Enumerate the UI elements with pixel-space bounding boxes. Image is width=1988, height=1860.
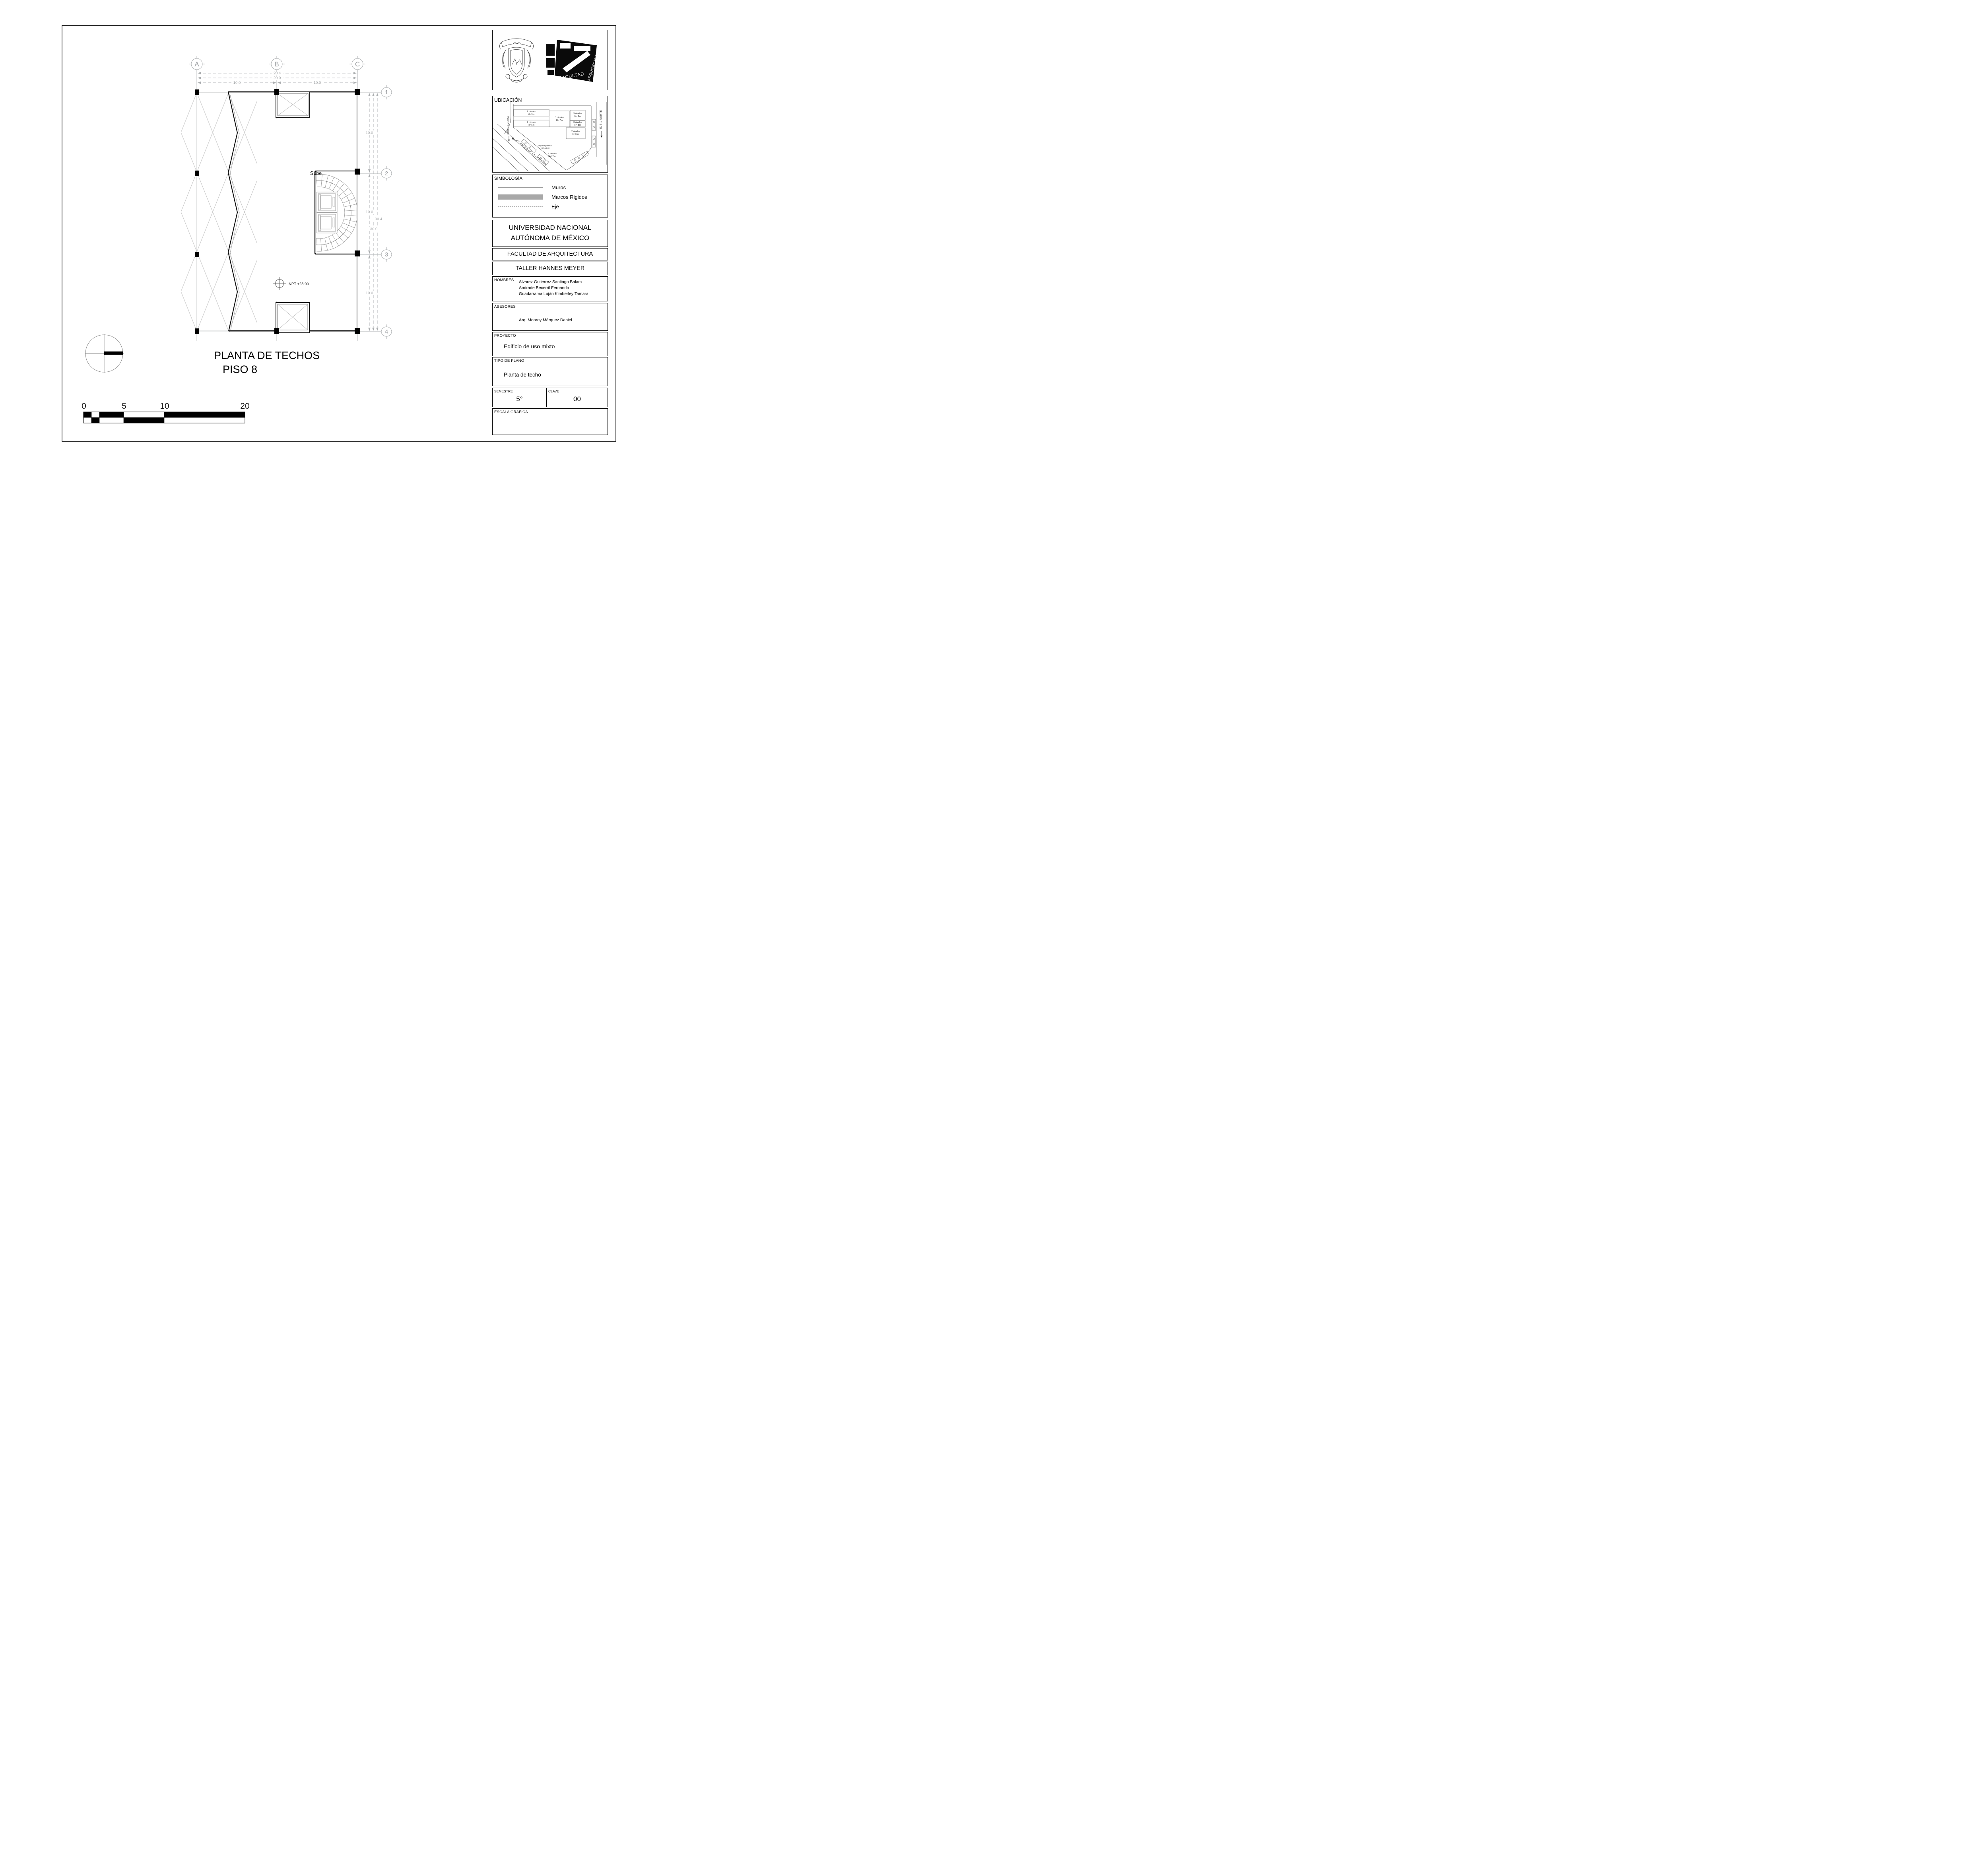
svg-text:10.0: 10.0: [366, 291, 373, 295]
svg-text:2 niveles: 2 niveles: [527, 121, 536, 124]
grid-bubbles-right: 1 2 3 4: [381, 85, 392, 339]
map-building-labels: 2 nivelesH= 5m 2 nivelesH= 5m 3 nivelesH…: [527, 111, 582, 158]
svg-text:H= 8m: H= 8m: [575, 124, 581, 126]
asesor-name: Arq. Monroy Márquez Daniel: [519, 318, 572, 322]
svg-text:PLANTA DE TECHOS: PLANTA DE TECHOS: [214, 349, 320, 361]
svg-text:2 niveles: 2 niveles: [571, 130, 580, 133]
unam-crest-icon: [499, 39, 533, 82]
semestre-value: 5°: [493, 395, 546, 403]
svg-text:MOCTEZUMA: MOCTEZUMA: [507, 116, 510, 134]
eje-dash-sample: [498, 206, 543, 207]
scale-bar: 0 5 10 20: [82, 402, 250, 423]
universidad-line1: UNIVERSIDAD NACIONAL: [493, 223, 608, 233]
svg-text:30.0: 30.0: [370, 227, 378, 231]
logos-panel: FACULTAD ARQUITECTURA: [492, 30, 608, 90]
nombres-panel: NOMBRES Alvarez Gutierrez Santiago Balam…: [492, 276, 608, 301]
svg-text:2: 2: [385, 170, 388, 177]
clave-label: CLAVE: [548, 389, 559, 393]
asesores-label: ASESORES: [494, 305, 516, 309]
dimension-labels-right: 10.0 10.0 10.0 30.0 30.4: [364, 130, 384, 295]
svg-text:B: B: [274, 60, 279, 68]
svg-text:H= 5m: H= 5m: [528, 124, 535, 126]
semestre-label: SEMESTRE: [494, 389, 513, 393]
tipo-plano-label: TIPO DE PLANO: [494, 359, 524, 363]
proyecto-value: Edificio de uso mixto: [504, 343, 555, 349]
tipo-plano-panel: TIPO DE PLANO Planta de techo: [492, 357, 608, 386]
svg-text:3 niveles: 3 niveles: [573, 113, 582, 115]
proyecto-panel: PROYECTO Edificio de uso mixto: [492, 332, 608, 356]
semestre-clave-panel: SEMESTRE 5° CLAVE 00: [492, 388, 608, 407]
svg-text:3: 3: [385, 251, 388, 258]
svg-text:EJE 1 NORTE: EJE 1 NORTE: [600, 110, 602, 129]
svg-text:0: 0: [82, 402, 86, 411]
muros-line-sample: [498, 187, 543, 188]
svg-text:NPT +28.00: NPT +28.00: [289, 282, 309, 286]
nombres-label: NOMBRES: [494, 278, 514, 282]
svg-text:3 niveles: 3 niveles: [555, 116, 564, 119]
svg-text:B.N. ±0.00: B.N. ±0.00: [542, 147, 549, 149]
clave-cell: CLAVE 00: [547, 388, 608, 407]
svg-text:30.4: 30.4: [375, 217, 382, 221]
title-block: FACULTAD ARQUITECTURA UBICACIÓN: [492, 0, 609, 465]
sheet: 20.4 20.0 10.0 10.0 10.0 10.0 10.0 30.0 …: [0, 0, 658, 465]
escala-panel: ESCALA GRÁFICA: [492, 408, 608, 435]
ubicacion-panel: UBICACIÓN: [492, 96, 608, 173]
roof-shaft-top: [276, 92, 310, 117]
sube-label: Sube: [310, 171, 322, 176]
marcos-bar-sample: [498, 194, 543, 200]
nombre-3: Guadarrama Luján Kimberley Tamara: [519, 291, 588, 297]
roof-shaft-bottom: [276, 303, 309, 333]
location-map: 2 nivelesH= 5m 2 nivelesH= 5m 3 nivelesH…: [493, 96, 607, 171]
universidad-line2: AUTÓNOMA DE MÉXICO: [493, 233, 608, 243]
svg-text:20.0: 20.0: [274, 76, 281, 80]
north-indicator-icon: [85, 334, 124, 373]
svg-text:20.4: 20.4: [274, 71, 281, 76]
svg-text:AV. PASEO DE LA REFORMA: AV. PASEO DE LA REFORMA: [515, 139, 547, 167]
svg-text:2 niveles: 2 niveles: [548, 153, 557, 155]
simbologia-panel: SIMBOLOGÍA Muros Marcos Rigidos Eje: [492, 175, 608, 217]
clave-value: 00: [547, 395, 608, 403]
svg-text:H=7.5m: H=7.5m: [548, 155, 556, 158]
simbologia-title: SIMBOLOGÍA: [494, 176, 522, 181]
svg-text:10.0: 10.0: [314, 81, 321, 85]
proyecto-label: PROYECTO: [494, 334, 516, 338]
legend-row-marcos: Marcos Rigidos: [498, 194, 608, 200]
asesores-panel: ASESORES Arq. Monroy Márquez Daniel: [492, 303, 608, 331]
tipo-plano-value: Planta de techo: [504, 372, 541, 378]
svg-text:10.0: 10.0: [366, 131, 373, 135]
ubicacion-title: UBICACIÓN: [494, 97, 522, 103]
svg-text:PISO 8: PISO 8: [223, 363, 257, 375]
taller-text: TALLER HANNES MEYER: [493, 265, 608, 272]
universidad-panel: UNIVERSIDAD NACIONAL AUTÓNOMA DE MÉXICO: [492, 220, 608, 247]
svg-text:A: A: [194, 60, 199, 68]
svg-text:10.0: 10.0: [366, 210, 373, 214]
svg-text:10: 10: [160, 402, 169, 411]
svg-text:H= 5m: H= 5m: [528, 113, 535, 116]
plan-title: PLANTA DE TECHOS PISO 8: [214, 349, 320, 375]
facultad-panel: FACULTAD DE ARQUITECTURA: [492, 248, 608, 260]
facultad-text: FACULTAD DE ARQUITECTURA: [493, 251, 608, 257]
svg-text:1: 1: [385, 89, 388, 96]
grid-bubbles-top: A B C: [189, 56, 365, 72]
svg-text:H= 8m: H= 8m: [575, 115, 581, 118]
taller-panel: TALLER HANNES MEYER: [492, 262, 608, 275]
npt-level-marker: NPT +28.00: [273, 277, 309, 290]
svg-text:H= 7m: H= 7m: [556, 119, 563, 122]
svg-text:20: 20: [240, 402, 249, 411]
elevator-shafts: [316, 192, 337, 233]
legend-row-eje: Eje: [498, 204, 608, 210]
nombre-1: Alvarez Gutierrez Santiago Balam: [519, 279, 588, 285]
nombre-2: Andrade Becerril Fernando: [519, 285, 588, 291]
svg-text:C: C: [355, 60, 360, 68]
svg-text:2 niveles: 2 niveles: [527, 111, 536, 113]
semestre-cell: SEMESTRE 5°: [493, 388, 547, 407]
svg-text:4: 4: [385, 328, 388, 335]
svg-text:5: 5: [122, 402, 126, 411]
svg-text:10.0: 10.0: [233, 81, 241, 85]
facultad-arquitectura-logo: FACULTAD ARQUITECTURA: [546, 40, 600, 82]
svg-text:3 niveles: 3 niveles: [573, 121, 582, 124]
escala-label: ESCALA GRÁFICA: [494, 410, 528, 414]
legend-row-muros: Muros: [498, 184, 608, 190]
diagrid-lattice: [181, 93, 257, 331]
svg-text:H=6 m: H=6 m: [573, 133, 579, 136]
